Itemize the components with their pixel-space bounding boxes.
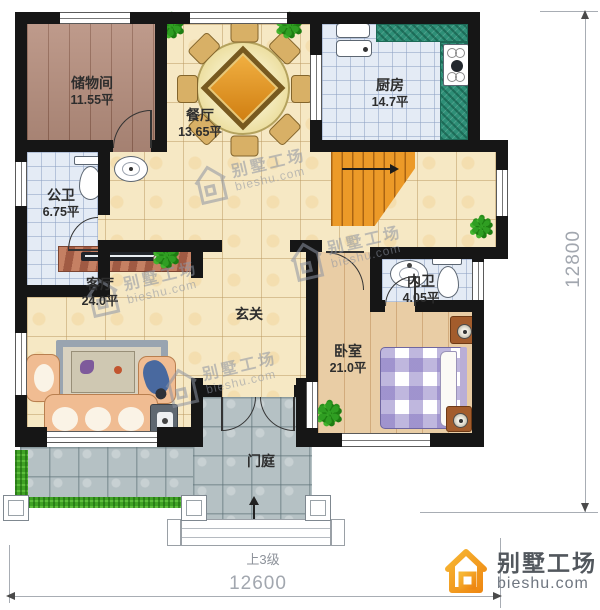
- bathroom-sink: [114, 156, 148, 182]
- wall-hall-living: [98, 240, 222, 252]
- window-inner-bath-east: [472, 262, 484, 300]
- kitchen-sliding-door: [310, 55, 322, 120]
- stair-direction-line: [342, 168, 392, 170]
- step-up-arrow-line: [253, 503, 255, 519]
- window-hall-east: [496, 170, 508, 216]
- wall-bedroom-south: [430, 433, 484, 447]
- room-label-living: 客厅24.0平: [82, 275, 119, 309]
- logo-house-icon: [443, 547, 489, 597]
- dining-chair: [291, 75, 312, 103]
- room-label-public-bath: 公卫6.75平: [43, 186, 80, 220]
- wall-inner-bath-north: [370, 247, 484, 259]
- wall-entry: [203, 385, 222, 397]
- porch-column: [3, 495, 29, 521]
- dimension-line-bottom: [10, 596, 500, 597]
- up-arrow-icon: [249, 496, 259, 505]
- dim-arrow-icon: [581, 503, 589, 512]
- dining-chair: [230, 22, 258, 43]
- entry-steps: [181, 519, 331, 546]
- window-storage-north: [60, 12, 130, 24]
- plant-icon: ✽: [316, 400, 341, 430]
- tv: [81, 252, 161, 261]
- site-logo: 别墅工场 bieshu.com: [443, 547, 597, 597]
- coffee-table: [71, 351, 135, 393]
- dim-arrow-icon: [6, 592, 15, 600]
- entry-step-side: [331, 519, 345, 546]
- porch-column: [181, 495, 207, 521]
- window-bedroom-west: [306, 382, 318, 428]
- dimension-leader: [420, 512, 598, 513]
- wall-storage-east: [155, 12, 167, 152]
- nightstand: [446, 406, 472, 432]
- porch-column: [305, 495, 331, 521]
- dimension-line-right: [585, 12, 586, 512]
- room-label-bedroom: 卧室21.0平: [330, 342, 367, 376]
- exterior-patch-top-right: [480, 0, 600, 150]
- wall-storage-south: [15, 140, 113, 152]
- plant-icon: ✽: [470, 214, 492, 240]
- entry-door-leaf-left: [221, 397, 223, 431]
- grass-strip-bottom: [28, 497, 184, 508]
- entry-door-leaf-right: [293, 397, 295, 431]
- dining-chair: [230, 136, 258, 157]
- wall-right-hall: [496, 152, 508, 170]
- logo-site: bieshu.com: [497, 575, 597, 593]
- wall-left: [15, 206, 27, 333]
- dim-arrow-icon: [581, 10, 589, 19]
- room-label-porch: 门庭: [247, 452, 275, 470]
- door-leaf-public-bath: [68, 249, 98, 251]
- room-label-hall: 玄关: [235, 305, 263, 323]
- door-leaf-bedroom: [326, 251, 364, 253]
- kitchen-sink: [336, 23, 370, 38]
- dimension-height-label: 12800: [563, 219, 585, 299]
- window-dining-north: [190, 12, 287, 24]
- room-label-inner-bath: 内卫4.05平: [403, 272, 440, 306]
- logo-brand: 别墅工场: [497, 551, 597, 575]
- stair-arrow-icon: [390, 164, 399, 174]
- wall-right-step: [484, 247, 508, 259]
- wall-kitchen-east: [468, 12, 480, 152]
- steps-note: 上3级: [233, 549, 293, 568]
- room-label-dining: 餐厅13.65平: [178, 106, 222, 140]
- entry-step-side: [167, 519, 181, 546]
- dimension-leader: [540, 11, 598, 12]
- kitchen-sink-basin: [336, 40, 372, 57]
- wall-public-bath-east: [98, 152, 110, 215]
- inner-toilet: [437, 266, 459, 298]
- wall-top: [287, 12, 480, 24]
- room-label-storage: 储物间11.55平: [70, 74, 113, 108]
- wall-inner-bath-south: [370, 300, 385, 312]
- window-living-west: [15, 333, 27, 395]
- window-living-south: [47, 431, 157, 443]
- dining-chair: [177, 75, 198, 103]
- pan-icon: [451, 60, 463, 72]
- wall-stub: [191, 252, 203, 278]
- floor-plan: ✽ ✽ ✽ ✽ ✽ 别墅工场 bieshu.com 别墅工场 bieshu.co…: [0, 0, 600, 610]
- wall-bedroom-west: [306, 240, 318, 382]
- kitchen-counter-top: [376, 24, 468, 42]
- wall-living-south: [15, 427, 47, 447]
- kitchen-stove: [443, 44, 469, 86]
- room-label-kitchen: 厨房14.7平: [372, 76, 409, 110]
- window-public-bath-west: [15, 162, 27, 206]
- door-leaf-storage: [150, 110, 152, 148]
- grass-strip-left: [15, 450, 28, 498]
- wall-storage-south: [151, 140, 167, 152]
- wall-bedroom-south: [296, 433, 342, 447]
- window-bedroom-south: [342, 433, 430, 447]
- wall-living-south: [157, 427, 203, 447]
- floor-terrace: [20, 447, 193, 498]
- dimension-width-label: 12600: [212, 573, 304, 595]
